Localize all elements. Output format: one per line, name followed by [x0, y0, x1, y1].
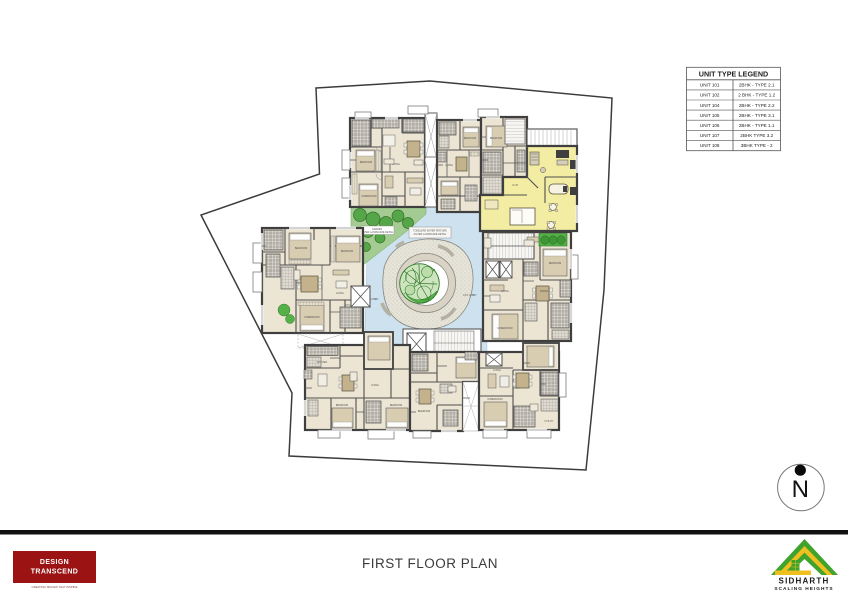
svg-text:M.BEDROOM: M.BEDROOM — [361, 195, 376, 198]
svg-text:M.BEDROOM: M.BEDROOM — [304, 316, 319, 319]
svg-text:LIVING: LIVING — [371, 384, 379, 387]
svg-text:LIVING: LIVING — [445, 164, 453, 167]
svg-text:LIFT LOBBY: LIFT LOBBY — [463, 294, 477, 297]
svg-text:M.BEDROOM: M.BEDROOM — [497, 327, 512, 330]
svg-text:UNIT 107: UNIT 107 — [700, 133, 720, 138]
svg-text:UNIT 101: UNIT 101 — [700, 83, 720, 88]
svg-text:2BHK - TYPE 1.1: 2BHK - TYPE 1.1 — [739, 123, 775, 128]
svg-text:UNIT TYPE LEGEND: UNIT TYPE LEGEND — [699, 70, 769, 79]
svg-text:BEDROOM: BEDROOM — [295, 247, 307, 250]
svg-text:BEDROOM: BEDROOM — [336, 404, 348, 407]
svg-text:AS PER LANDSCAPE DETAIL: AS PER LANDSCAPE DETAIL — [361, 231, 394, 234]
svg-text:GYM: GYM — [512, 184, 517, 187]
svg-text:BEDROOM: BEDROOM — [418, 410, 430, 413]
svg-text:UNIT 102: UNIT 102 — [700, 93, 720, 98]
svg-text:BEDROOM: BEDROOM — [464, 137, 476, 140]
svg-text:BEDROOM: BEDROOM — [490, 137, 502, 140]
svg-text:UNIT 106: UNIT 106 — [700, 123, 720, 128]
svg-text:2BHK - TYPE 3.1: 2BHK - TYPE 3.1 — [739, 113, 775, 118]
svg-text:2 BHK - TYPE 1.2: 2 BHK - TYPE 1.2 — [738, 93, 775, 98]
svg-text:DESIGN: DESIGN — [40, 559, 69, 566]
svg-text:2BHK TYPE 3.2: 2BHK TYPE 3.2 — [740, 133, 773, 138]
svg-text:SCALING HEIGHTS: SCALING HEIGHTS — [774, 586, 833, 592]
svg-text:LIVING: LIVING — [493, 369, 501, 372]
svg-text:SIDHARTH: SIDHARTH — [779, 577, 830, 586]
svg-text:AS PER LANDSCAPE DETAIL: AS PER LANDSCAPE DETAIL — [414, 233, 447, 236]
svg-text:M.BEDROOM: M.BEDROOM — [487, 398, 502, 401]
svg-text:FIRST FLOOR PLAN: FIRST FLOOR PLAN — [362, 556, 498, 571]
svg-text:UNIT 104: UNIT 104 — [700, 103, 720, 108]
svg-text:UTILITY: UTILITY — [545, 420, 554, 423]
svg-text:KITCHEN: KITCHEN — [317, 361, 328, 364]
svg-text:UNIT 108: UNIT 108 — [700, 143, 720, 148]
svg-text:LIVING: LIVING — [336, 292, 344, 295]
svg-text:UNIT 105: UNIT 105 — [700, 113, 720, 118]
svg-text:2BHK - TYPE 2.1: 2BHK - TYPE 2.1 — [739, 83, 775, 88]
svg-text:LIVING: LIVING — [501, 290, 509, 293]
svg-text:BEDROOM: BEDROOM — [341, 250, 353, 253]
svg-text:3BHK TYPE - 2: 3BHK TYPE - 2 — [741, 143, 773, 148]
svg-text:BEDROOM: BEDROOM — [360, 161, 372, 164]
svg-text:2BHK - TYPE 2.2: 2BHK - TYPE 2.2 — [739, 103, 775, 108]
svg-text:CREATING SPACES THAT INSPIRE: CREATING SPACES THAT INSPIRE — [32, 585, 78, 589]
svg-text:N: N — [792, 476, 809, 503]
svg-text:BEDROOM: BEDROOM — [390, 404, 402, 407]
svg-text:BEDROOM: BEDROOM — [549, 262, 561, 265]
svg-text:TRANSCEND: TRANSCEND — [31, 569, 79, 576]
